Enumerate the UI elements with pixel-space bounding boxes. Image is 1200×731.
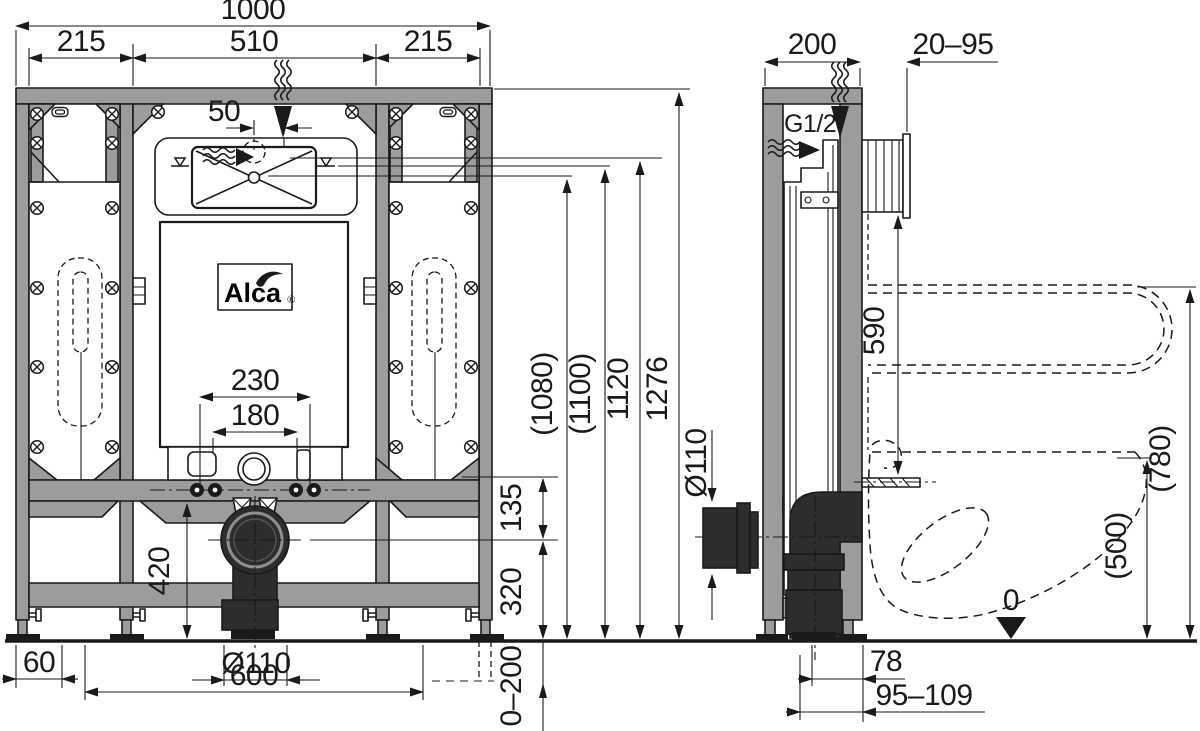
fixing-rod — [854, 478, 936, 487]
dim-135-320: 135 320 — [495, 479, 543, 638]
keyhole-slot-icon — [440, 108, 456, 117]
keyhole-slot-icon — [52, 108, 68, 117]
svg-text:215: 215 — [404, 25, 453, 58]
frame-upright-inner-left — [120, 104, 133, 620]
water-supply-arrow-icon — [274, 106, 292, 138]
svg-text:600: 600 — [230, 659, 279, 692]
svg-text:78: 78 — [870, 645, 902, 678]
dim-flush-to-fixing: 590 — [858, 216, 898, 474]
svg-text:230: 230 — [231, 364, 280, 397]
svg-text:320: 320 — [495, 568, 528, 617]
cistern-tank — [160, 222, 348, 480]
drawing-canvas: Alca ® — [0, 0, 1200, 731]
svg-text:420: 420 — [143, 547, 176, 596]
svg-text:1120: 1120 — [602, 358, 635, 421]
outlet-sleeve: Ø110 — [680, 428, 758, 620]
svg-text:510: 510 — [230, 25, 279, 58]
datum-zero-icon — [996, 617, 1026, 639]
dim-outlet-range: 95–109 — [786, 679, 985, 712]
svg-text:180: 180 — [231, 399, 280, 432]
svg-text:200: 200 — [788, 28, 837, 61]
dim-wall-finish: 20–95 — [907, 28, 998, 132]
svg-text:(1100): (1100) — [564, 353, 597, 435]
svg-text:60: 60 — [23, 646, 55, 679]
floor-datum: 0 — [996, 584, 1026, 639]
svg-text:135: 135 — [495, 484, 528, 533]
brand-name: Alca — [224, 278, 282, 308]
support-bar-dashed — [868, 214, 1172, 450]
registered-mark: ® — [287, 294, 295, 306]
svg-text:590: 590 — [858, 307, 891, 356]
svg-text:(780): (780) — [1144, 425, 1177, 493]
dim-heights: (1080) (1100) 1120 1276 — [526, 93, 679, 638]
svg-text:215: 215 — [57, 25, 106, 58]
flush-bend-pipe — [862, 134, 910, 218]
frame-upright-outer-left — [16, 104, 29, 620]
dim-sections: 215 510 215 — [29, 25, 480, 86]
dim-support-bar-height: (780) — [1137, 287, 1196, 638]
water-flow-arrow-icon — [799, 141, 820, 159]
frame-upright-outer-right — [479, 104, 492, 620]
dim-floor-adjust: 0–200 — [432, 641, 547, 731]
svg-text:0–200: 0–200 — [495, 646, 528, 727]
side-top-cap — [763, 88, 862, 104]
svg-text:(1080): (1080) — [526, 352, 559, 436]
fill-valve-bracket — [801, 192, 838, 208]
svg-text:0: 0 — [1003, 584, 1019, 617]
svg-text:50: 50 — [208, 95, 240, 128]
frame-top-bar — [16, 88, 492, 104]
svg-text:95–109: 95–109 — [875, 679, 972, 712]
svg-text:Ø110: Ø110 — [680, 428, 713, 497]
flush-plate-opening — [155, 112, 357, 215]
side-view: G1/2" Ø110 — [680, 28, 1196, 722]
side-back-upright — [763, 104, 783, 620]
svg-text:(500): (500) — [1100, 512, 1133, 580]
dim-wall-offset: 60 — [2, 645, 78, 688]
technical-drawing: Alca ® — [0, 0, 1200, 731]
svg-text:1276: 1276 — [641, 357, 674, 422]
svg-text:20–95: 20–95 — [913, 28, 994, 61]
dim-leg-clearance: 420 — [143, 504, 187, 638]
svg-text:1000: 1000 — [221, 0, 286, 26]
frame-upright-inner-right — [376, 104, 389, 620]
